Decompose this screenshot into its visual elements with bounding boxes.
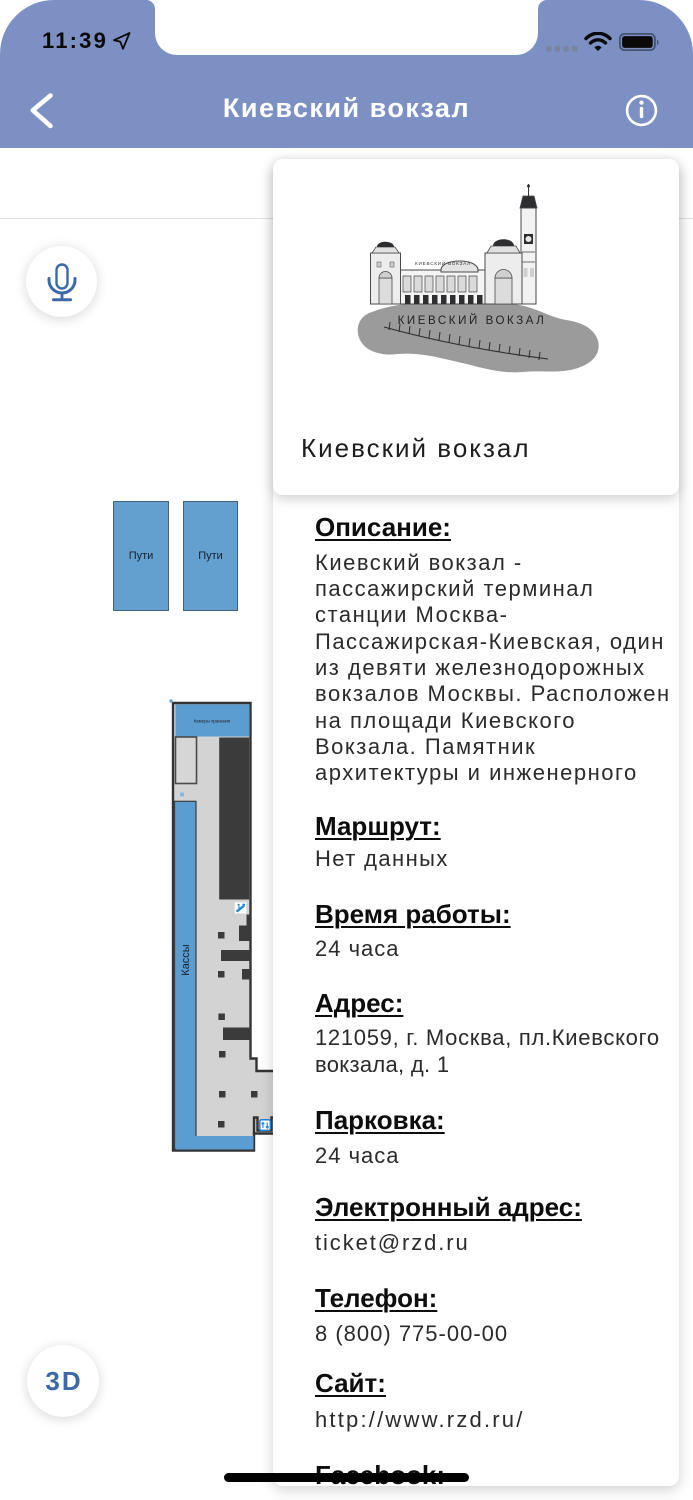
svg-text:Камеры хранения: Камеры хранения — [194, 719, 231, 724]
svg-text:КИЕВСКИЙ ВОКЗАЛ: КИЕВСКИЙ ВОКЗАЛ — [398, 314, 547, 327]
svg-text:Кассы: Кассы — [180, 944, 192, 976]
svg-text:КИЕВСКИЙ ВОКЗАЛ: КИЕВСКИЙ ВОКЗАЛ — [415, 259, 471, 266]
